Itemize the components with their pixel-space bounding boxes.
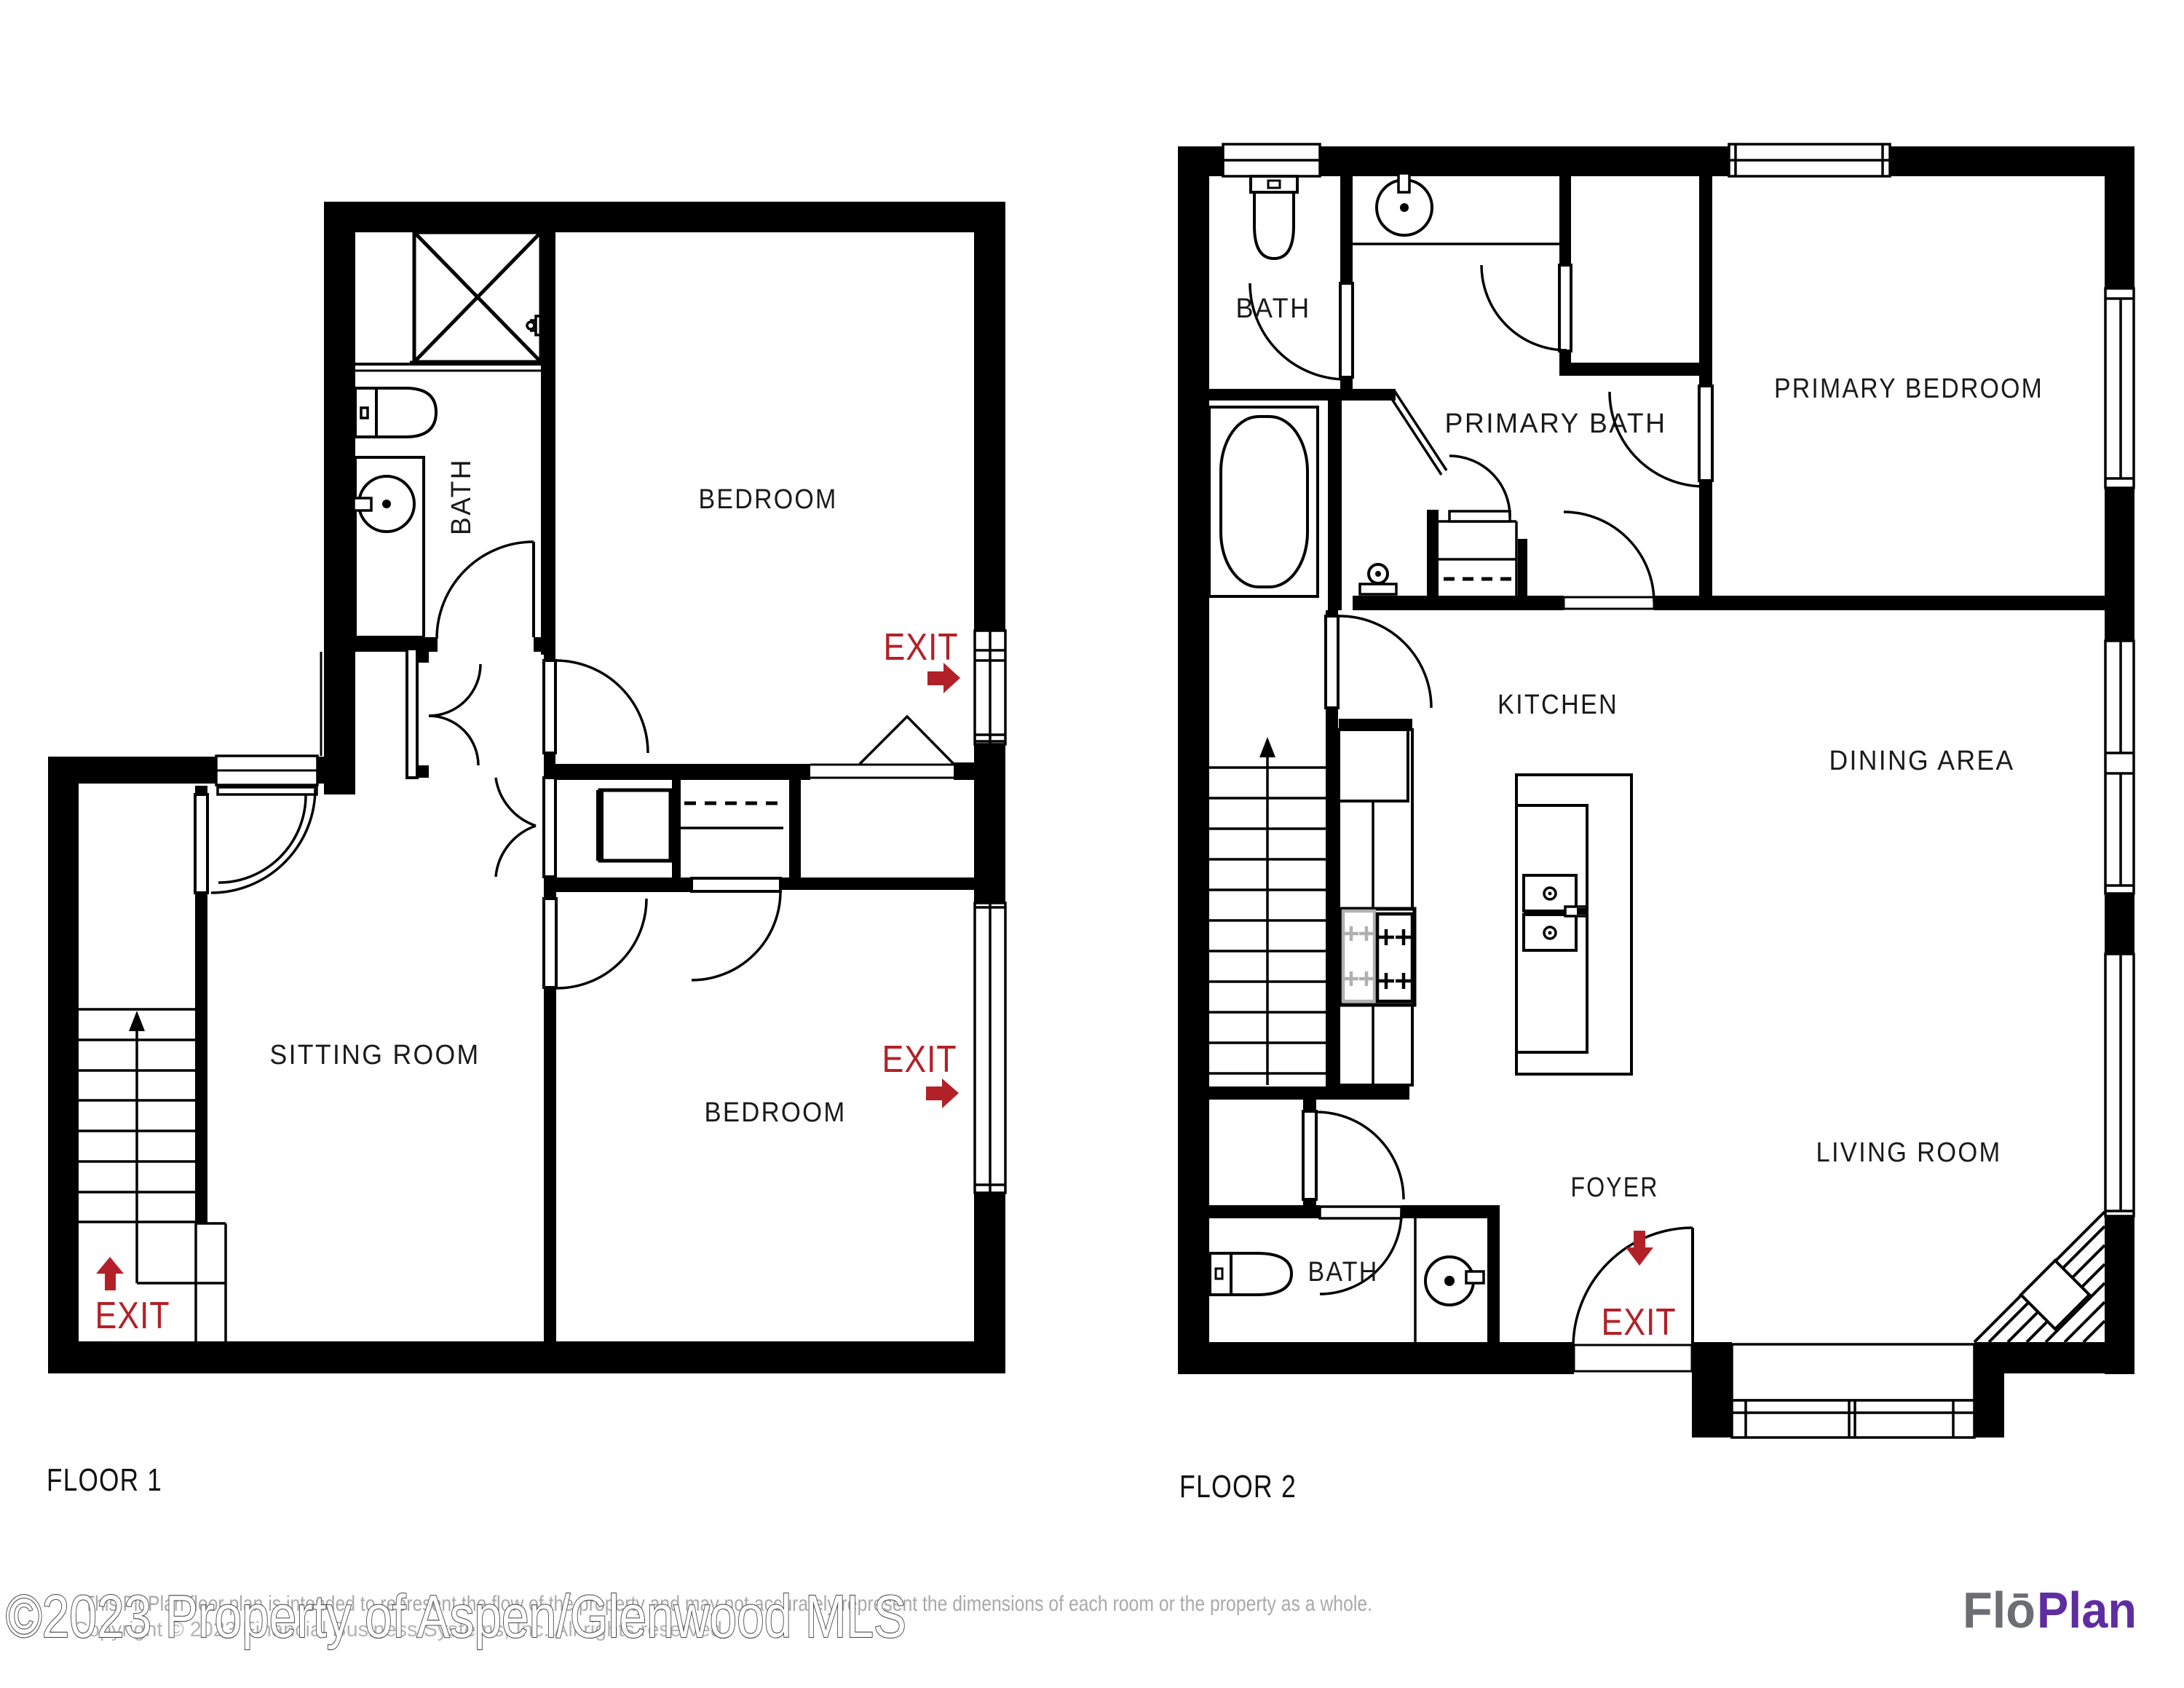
svg-text:LIVING ROOM: LIVING ROOM <box>1816 1137 2002 1168</box>
svg-text:FLOOR 2: FLOOR 2 <box>1179 1469 1297 1504</box>
svg-text:KITCHEN: KITCHEN <box>1497 690 1618 720</box>
svg-text:PRIMARY BATH: PRIMARY BATH <box>1445 409 1667 439</box>
svg-text:Flō: Flō <box>1963 1582 2035 1638</box>
svg-text:FOYER: FOYER <box>1571 1172 1659 1203</box>
svg-text:BEDROOM: BEDROOM <box>705 1097 847 1128</box>
svg-text:BATH: BATH <box>446 458 477 535</box>
svg-text:EXIT: EXIT <box>1602 1301 1677 1344</box>
svg-text:BEDROOM: BEDROOM <box>699 484 838 515</box>
svg-text:PRIMARY BEDROOM: PRIMARY BEDROOM <box>1774 374 2043 404</box>
svg-text:Plan: Plan <box>2037 1582 2137 1638</box>
svg-text:BATH: BATH <box>1236 293 1311 324</box>
svg-text:EXIT: EXIT <box>882 1038 957 1081</box>
svg-text:SITTING ROOM: SITTING ROOM <box>270 1040 480 1070</box>
svg-text:©2023 Property of Aspen/Glenwo: ©2023 Property of Aspen/Glenwood MLS <box>6 1582 906 1650</box>
svg-text:EXIT: EXIT <box>95 1295 170 1337</box>
svg-text:BATH: BATH <box>1308 1257 1379 1287</box>
svg-text:DINING AREA: DINING AREA <box>1829 746 2015 776</box>
svg-text:EXIT: EXIT <box>884 626 959 669</box>
svg-text:FLOOR 1: FLOOR 1 <box>47 1462 162 1498</box>
